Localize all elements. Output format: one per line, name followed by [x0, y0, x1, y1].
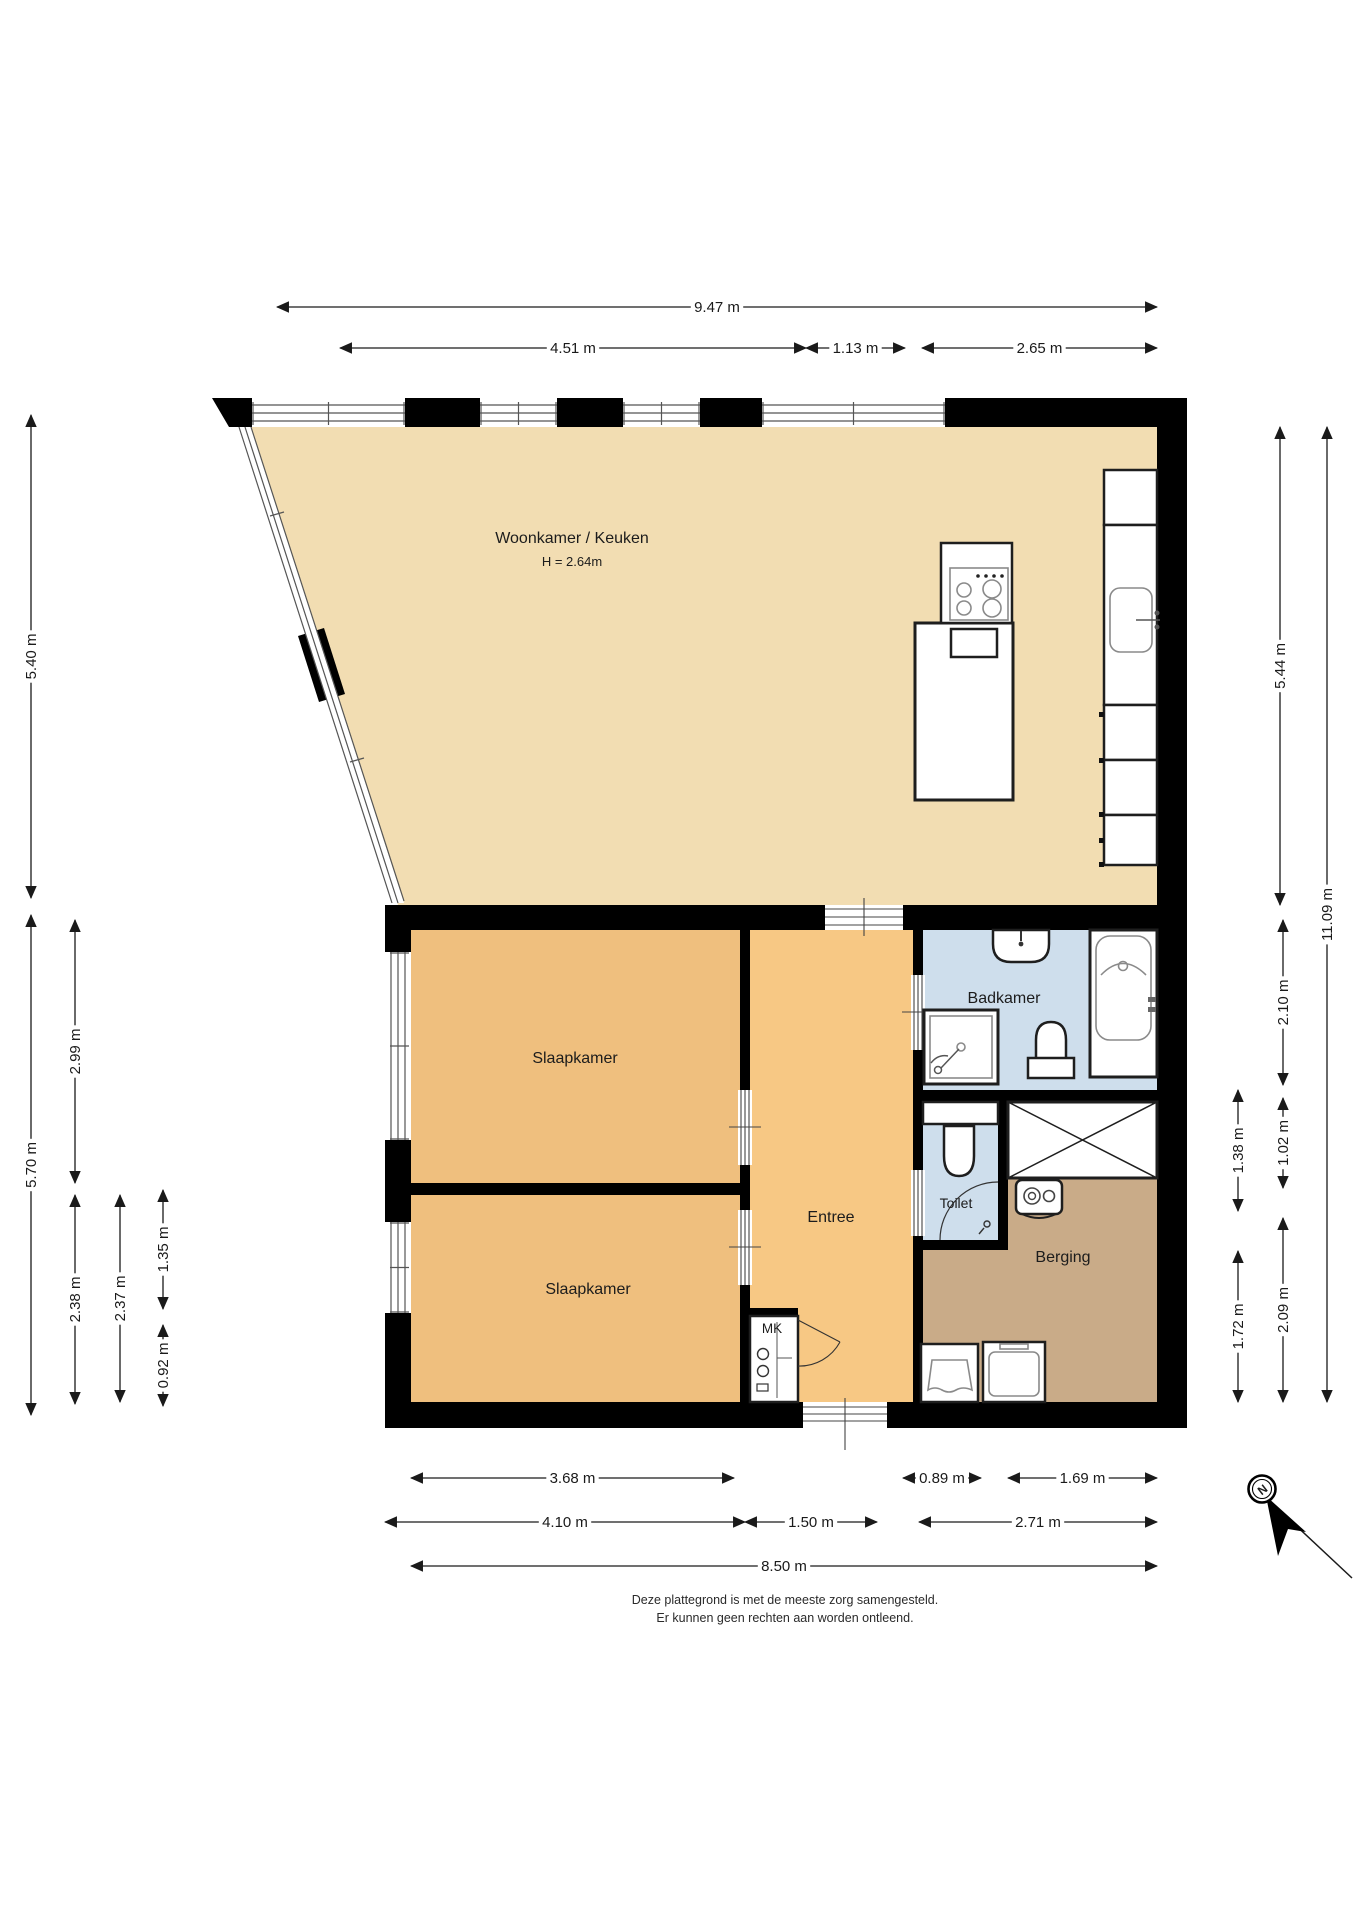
washing-machine-icon: [983, 1342, 1045, 1402]
dimension-label: 1.35 m: [155, 1227, 172, 1273]
footer-line-2: Er kunnen geen rechten aan worden ontlee…: [656, 1611, 913, 1625]
dimension-label: 2.99 m: [67, 1029, 84, 1075]
dimension-l6: 1.35 m: [154, 1190, 172, 1309]
dimension-label: 0.92 m: [155, 1343, 172, 1389]
dimension-r4: 1.38 m: [1229, 1090, 1247, 1211]
dimension-label: 2.38 m: [67, 1277, 84, 1323]
bedroom1-label: Slaapkamer: [532, 1050, 618, 1067]
window: [388, 952, 411, 1140]
compass-icon: N: [1249, 1476, 1353, 1579]
dimension-label: 0.89 m: [919, 1470, 965, 1487]
window: [388, 1222, 411, 1313]
window: [623, 400, 700, 427]
toilet-icon: [944, 1126, 974, 1176]
laundry-sink-icon: [921, 1344, 978, 1402]
dimension-l7: 0.92 m: [154, 1325, 172, 1406]
dimension-label: 2.09 m: [1275, 1287, 1292, 1333]
dimension-label: 3.68 m: [550, 1470, 596, 1487]
shower-icon: [924, 1010, 998, 1084]
dimension-t3: 1.13 m: [806, 339, 905, 357]
dimension-b5: 1.50 m: [745, 1513, 877, 1531]
dimension-label: 2.71 m: [1015, 1514, 1061, 1531]
dimension-label: 1.02 m: [1275, 1120, 1292, 1166]
washbasin-icon: [993, 930, 1049, 962]
dimension-t4: 2.65 m: [922, 339, 1157, 357]
dimension-label: 1.69 m: [1060, 1470, 1106, 1487]
dimension-b6: 2.71 m: [919, 1513, 1157, 1531]
dimension-label: 4.51 m: [550, 340, 596, 357]
dimension-label: 2.65 m: [1017, 340, 1063, 357]
dimension-l3: 2.99 m: [66, 920, 84, 1183]
dimension-label: 5.70 m: [23, 1142, 40, 1188]
dimension-r6: 1.72 m: [1229, 1251, 1247, 1402]
island-sink-icon: [951, 629, 997, 657]
footer-disclaimer: Deze plattegrond is met de meeste zorg s…: [632, 1593, 938, 1625]
meter-cupboard-label: MK: [762, 1321, 782, 1336]
dimension-label: 8.50 m: [761, 1558, 807, 1575]
toilet-shelf: [923, 1102, 998, 1124]
dimension-label: 11.09 m: [1319, 888, 1336, 941]
kitchen-counter: [1099, 470, 1160, 867]
bedroom2-label: Slaapkamer: [545, 1281, 631, 1298]
window: [480, 400, 557, 427]
floor-plan-canvas: Woonkamer / Keuken H = 2.64m Slaapkamer …: [0, 0, 1358, 1920]
dimension-label: 1.50 m: [788, 1514, 834, 1531]
bedroom2-floor: [411, 1195, 740, 1402]
bathtub-icon: [1090, 930, 1157, 1077]
dimension-l2: 5.70 m: [22, 915, 40, 1415]
dimension-label: 5.40 m: [23, 634, 40, 680]
dimension-t2: 4.51 m: [340, 339, 806, 357]
living-room-height-label: H = 2.64m: [542, 554, 602, 569]
dimension-b4: 4.10 m: [385, 1513, 745, 1531]
dimension-b1: 3.68 m: [411, 1469, 734, 1487]
dimension-label: 4.10 m: [542, 1514, 588, 1531]
dimension-r1: 5.44 m: [1271, 427, 1289, 905]
front-door: [803, 1398, 887, 1450]
window: [252, 400, 405, 427]
dimension-label: 2.10 m: [1275, 980, 1292, 1026]
dimension-r2: 11.09 m: [1318, 427, 1336, 1402]
cooktop-icon: [941, 543, 1012, 623]
bathroom-label: Badkamer: [968, 990, 1042, 1007]
floor-plan: Woonkamer / Keuken H = 2.64m Slaapkamer …: [0, 0, 1358, 1920]
dimension-b2: 0.89 m: [903, 1469, 981, 1487]
dimension-b3: 1.69 m: [1008, 1469, 1157, 1487]
dimension-label: 9.47 m: [694, 299, 740, 316]
dimension-l1: 5.40 m: [22, 415, 40, 898]
toilet-door-opening: [911, 1170, 925, 1236]
storage-label: Berging: [1035, 1249, 1090, 1266]
dimension-label: 1.72 m: [1230, 1304, 1247, 1350]
dimension-l4: 2.38 m: [66, 1195, 84, 1404]
dimension-label: 2.37 m: [112, 1276, 129, 1322]
dimension-label: 1.13 m: [833, 340, 879, 357]
dimension-t1: 9.47 m: [277, 298, 1157, 316]
dimension-r3: 2.10 m: [1274, 920, 1292, 1085]
dimension-r5: 1.02 m: [1274, 1098, 1292, 1188]
footer-line-1: Deze plattegrond is met de meeste zorg s…: [632, 1593, 938, 1607]
dimension-l5: 2.37 m: [111, 1195, 129, 1402]
toilet-label: Toilet: [940, 1195, 973, 1211]
dimension-label: 1.38 m: [1230, 1128, 1247, 1174]
dimension-b7: 8.50 m: [411, 1557, 1157, 1575]
shaft-x-icon: [1008, 1102, 1157, 1178]
boiler-icon: [1016, 1180, 1062, 1218]
hallway-label: Entree: [807, 1209, 854, 1226]
window: [762, 400, 945, 427]
living-room-label: Woonkamer / Keuken: [495, 530, 649, 547]
dimension-label: 5.44 m: [1272, 643, 1289, 689]
dimension-r7: 2.09 m: [1274, 1218, 1292, 1402]
